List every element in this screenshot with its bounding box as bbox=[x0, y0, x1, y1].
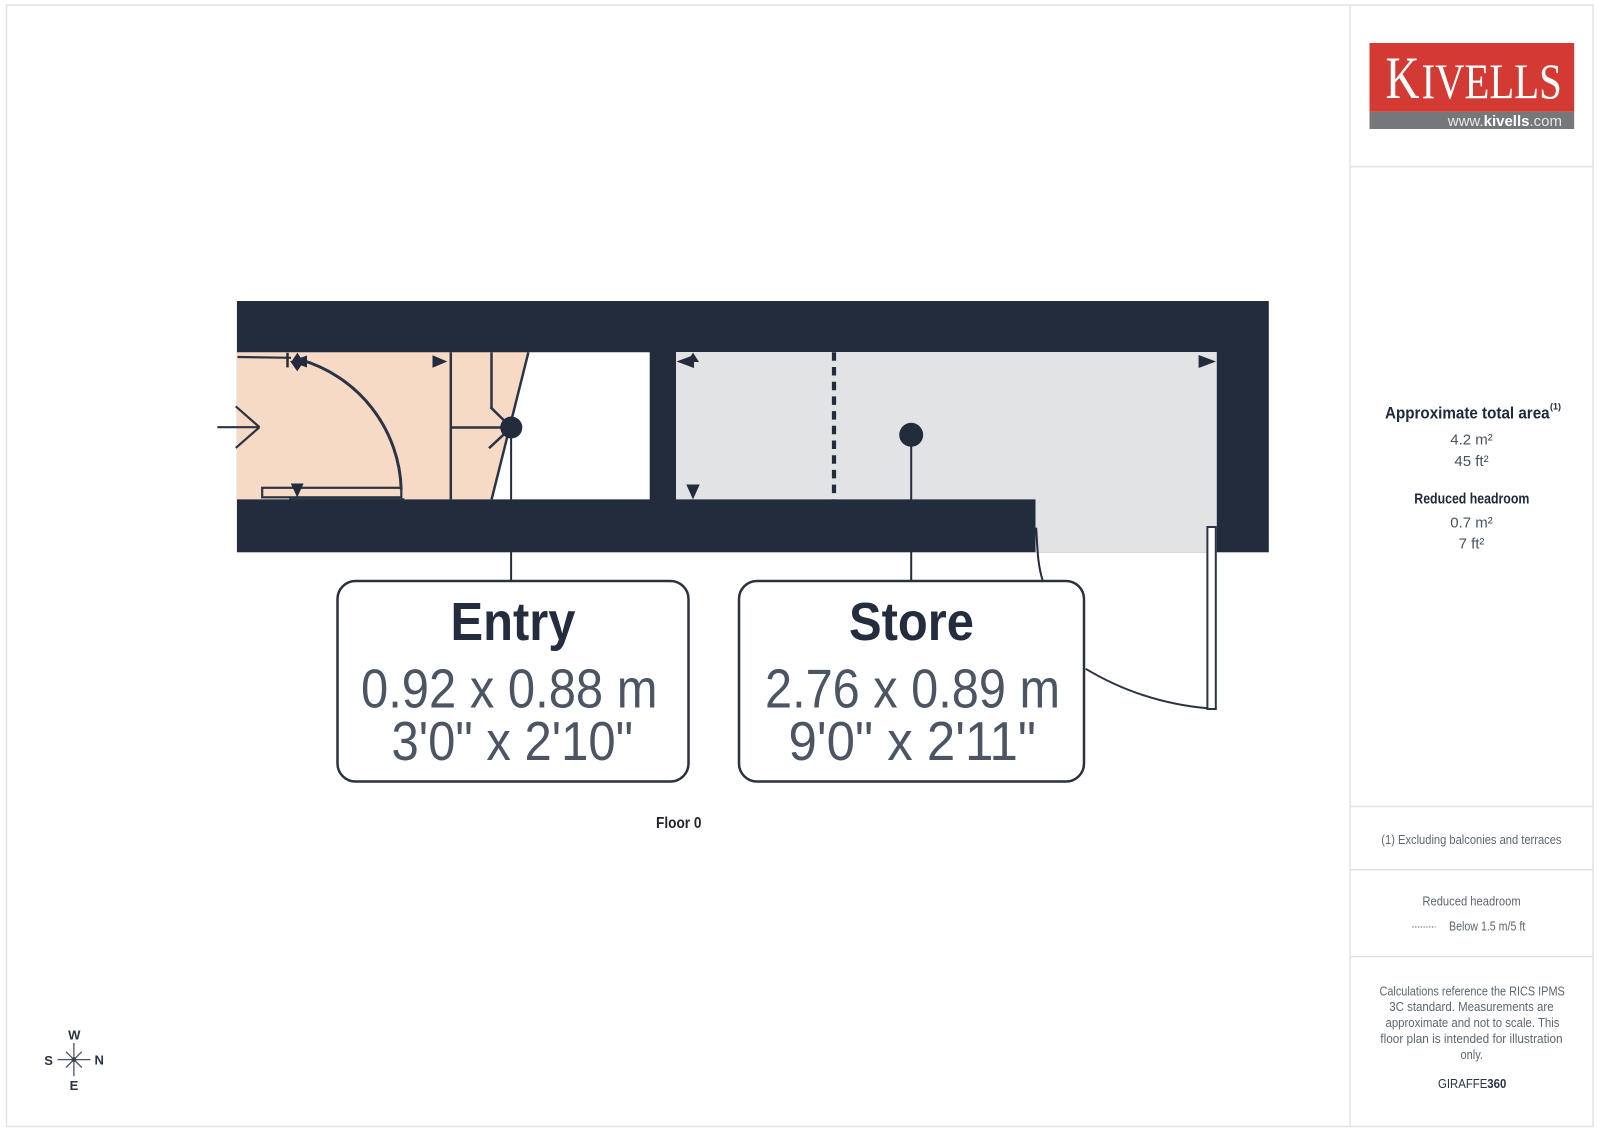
svg-text:N: N bbox=[95, 1053, 104, 1068]
svg-text:3'0" x 2'10": 3'0" x 2'10" bbox=[392, 710, 634, 772]
svg-text:(1): (1) bbox=[1550, 402, 1561, 412]
svg-text:only.: only. bbox=[1461, 1047, 1484, 1062]
svg-text:www.kivells.com: www.kivells.com bbox=[1447, 113, 1562, 130]
svg-text:Reduced headroom: Reduced headroom bbox=[1422, 894, 1520, 909]
svg-text:45 ft²: 45 ft² bbox=[1454, 453, 1488, 470]
svg-text:7 ft²: 7 ft² bbox=[1459, 536, 1485, 553]
svg-text:(1) Excluding balconies and te: (1) Excluding balconies and terraces bbox=[1381, 832, 1562, 847]
svg-text:approximate and not to scale.: approximate and not to scale. This bbox=[1386, 1015, 1560, 1030]
svg-text:GIRAFFE360: GIRAFFE360 bbox=[1438, 1077, 1506, 1091]
svg-text:S: S bbox=[44, 1053, 53, 1068]
svg-text:0.7 m²: 0.7 m² bbox=[1450, 515, 1493, 532]
svg-text:Reduced headroom: Reduced headroom bbox=[1414, 492, 1529, 508]
svg-text:Entry: Entry bbox=[451, 592, 576, 652]
svg-text:4.2 m²: 4.2 m² bbox=[1450, 432, 1493, 449]
svg-text:floor plan is intended for ill: floor plan is intended for illustration bbox=[1380, 1031, 1562, 1046]
svg-text:Below 1.5 m/5 ft: Below 1.5 m/5 ft bbox=[1449, 919, 1526, 934]
svg-text:K: K bbox=[1386, 45, 1420, 111]
svg-text:Floor 0: Floor 0 bbox=[656, 815, 702, 832]
svg-text:W: W bbox=[68, 1028, 81, 1043]
svg-text:Store: Store bbox=[849, 592, 974, 652]
svg-text:E: E bbox=[70, 1078, 79, 1093]
svg-text:Calculations reference the RIC: Calculations reference the RICS IPMS bbox=[1380, 983, 1565, 998]
svg-text:IVELLS: IVELLS bbox=[1422, 53, 1562, 109]
svg-text:3C standard. Measurements are: 3C standard. Measurements are bbox=[1389, 999, 1553, 1014]
svg-text:9'0" x 2'11": 9'0" x 2'11" bbox=[789, 710, 1037, 772]
svg-text:Approximate total area: Approximate total area bbox=[1385, 405, 1550, 423]
